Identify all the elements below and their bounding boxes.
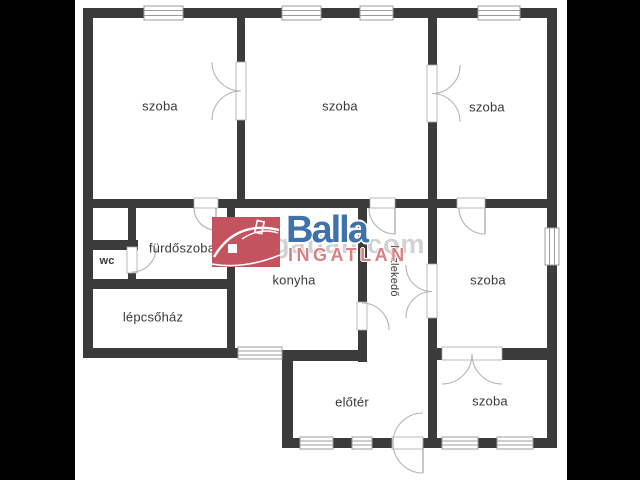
balla-logo-subtext: INGATLAN — [288, 245, 408, 266]
window — [360, 6, 393, 20]
wall — [393, 8, 478, 18]
window — [497, 437, 533, 449]
wall — [237, 18, 245, 62]
room-label-szoba-top-right: szoba — [469, 100, 505, 115]
window — [238, 347, 282, 359]
wall — [128, 272, 136, 289]
window — [352, 437, 372, 449]
wall — [237, 120, 245, 199]
balla-logo-house-icon — [212, 217, 280, 267]
wall — [547, 8, 557, 228]
room-label-kitchen: konyha — [272, 273, 315, 288]
wall — [183, 8, 282, 18]
wall — [533, 438, 557, 448]
room-label-wc: wc — [99, 255, 114, 267]
door-opening — [127, 247, 137, 273]
door-opening — [194, 198, 218, 208]
door-opening — [457, 198, 485, 208]
wall — [428, 18, 437, 65]
room-label-szoba-bottom: szoba — [472, 394, 508, 409]
window — [442, 437, 478, 449]
window — [282, 6, 321, 20]
wall — [83, 8, 93, 358]
wall — [83, 279, 235, 289]
wall — [395, 199, 457, 208]
window — [144, 6, 183, 20]
door-opening — [370, 198, 395, 208]
wall — [428, 318, 437, 448]
wall — [83, 348, 238, 358]
door-opening — [392, 437, 423, 449]
room-label-bathroom: fürdőszoba — [149, 241, 215, 256]
door-opening — [357, 302, 367, 330]
wall — [128, 208, 136, 248]
window — [545, 228, 559, 265]
wall — [218, 199, 370, 208]
room-label-szoba-top-left: szoba — [142, 99, 178, 114]
door-arcs — [132, 62, 502, 473]
wall — [83, 199, 195, 208]
room-label-szoba-top-middle: szoba — [322, 99, 358, 114]
wall — [485, 199, 547, 208]
wall — [321, 8, 360, 18]
wall — [358, 330, 367, 362]
room-label-foyer: előtér — [335, 395, 369, 410]
wall — [478, 438, 497, 448]
wall — [282, 350, 293, 448]
room-label-szoba-middle-right: szoba — [470, 273, 506, 288]
wall — [282, 350, 365, 361]
window — [300, 437, 333, 449]
floorplan-image: szoba szoba szoba fürdőszoba wc lépcsőhá… — [0, 0, 640, 480]
window — [478, 6, 520, 20]
door-arc — [459, 208, 485, 234]
wall — [502, 348, 557, 360]
wall — [428, 122, 437, 265]
wall — [333, 438, 352, 448]
room-label-stairwell: lépcsőház — [123, 310, 183, 325]
wall — [372, 438, 392, 448]
